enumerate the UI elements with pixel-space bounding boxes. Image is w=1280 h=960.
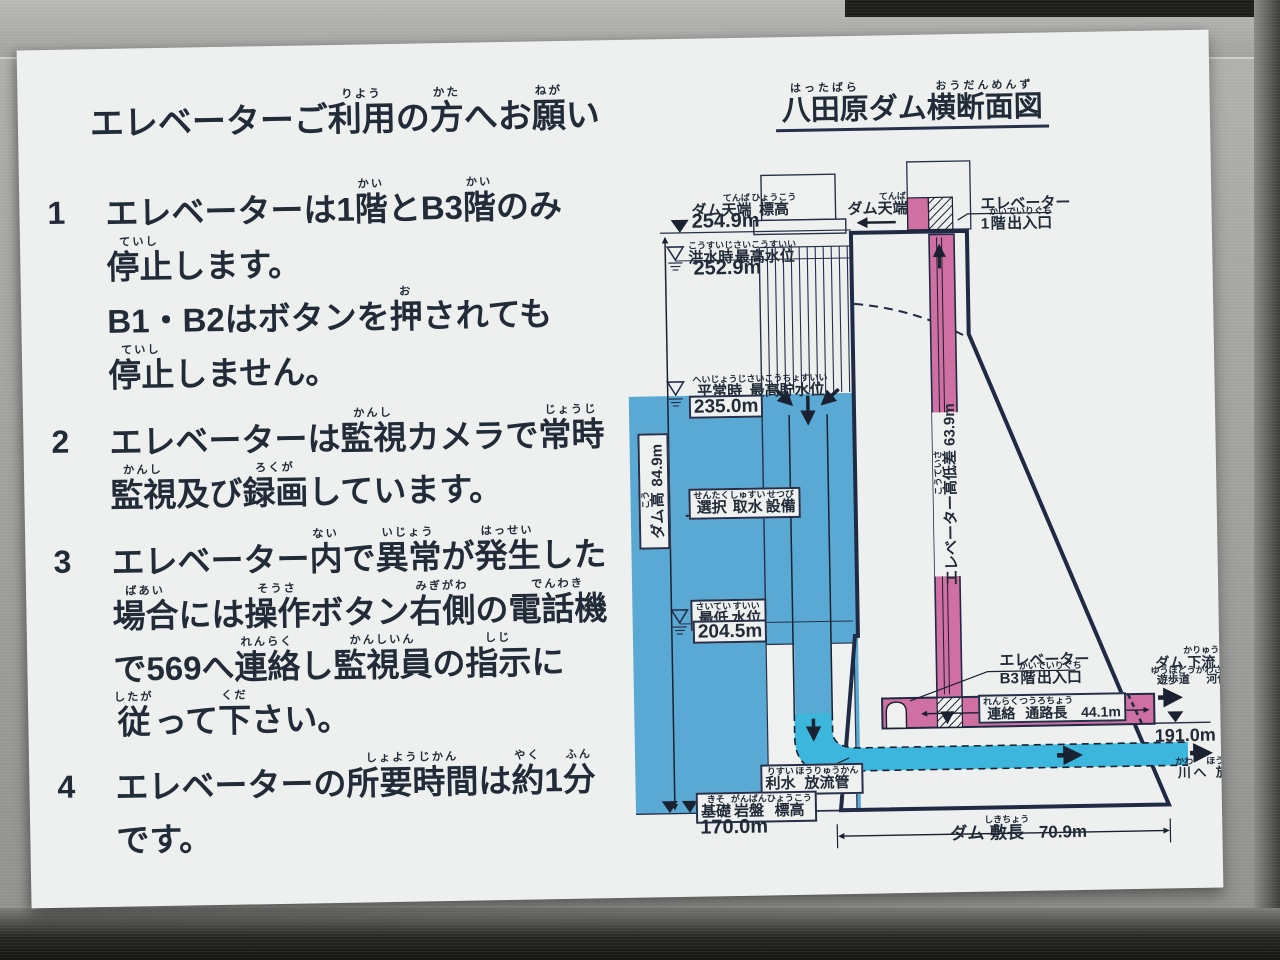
tower-slab: [754, 219, 846, 235]
b3-entrance-label: B3かい階でいりぐち出入口: [999, 660, 1082, 688]
foundation-value: 170.0m: [700, 816, 768, 837]
normal-level-value: 235.0m: [689, 394, 764, 418]
machine-room: [907, 198, 929, 230]
crest-elevation-value: 254.9m: [692, 211, 760, 232]
river-discharge-label: かわ川 へほうりゅう放流: [1175, 755, 1223, 781]
min-level-value: 204.5m: [693, 619, 768, 643]
diagram-title: はったばら八田原 ダムおうだんめんず横断面図: [775, 78, 1049, 132]
dam-cross-section-drawing: [17, 30, 1224, 909]
corridor-arch: [886, 702, 906, 728]
base-length-label: ダムしきちょう敷長 70.9m: [950, 813, 1087, 844]
trash-rack-screen: [767, 246, 850, 393]
sign-card: エレベーターごりよう利用 のかた方 へおねが願 い 1 エレベーターは1かい階 …: [17, 30, 1224, 909]
f1-entrance-label: 1かい階でいりぐち出入口: [980, 205, 1052, 233]
flood-level-value: 252.9m: [693, 258, 761, 279]
crest-arrow: [859, 222, 896, 223]
walkway-label: ゆうほどう遊歩道かわさきょう河佐峡 へ: [1151, 664, 1224, 688]
tailwater-triangle: [1167, 711, 1183, 722]
tailwater-value: 191.0m: [1155, 726, 1216, 745]
photo-of-elevator-sign: { "colors": {"water":"#5aa9d4","pipe":"#…: [0, 0, 1280, 960]
crest-level-triangle: [671, 220, 689, 233]
corridor-length-label: れんらく連絡つうろちょう通路長 44.1m: [978, 692, 1126, 724]
dam-crest-label: ダムてんば天端: [847, 191, 907, 219]
normal-level-symbol: [667, 382, 683, 395]
shaft-height-label: エレベーターこうていさ高低差 63.9m: [932, 412, 961, 576]
dam-height-label: ダムこう高 84.9m: [637, 433, 670, 550]
flood-level-symbol: [667, 247, 683, 260]
intake-equipment-label: せんたく選択しゅすい取水せつび設備: [688, 487, 801, 519]
f1-entrance-hatch: [928, 197, 953, 229]
